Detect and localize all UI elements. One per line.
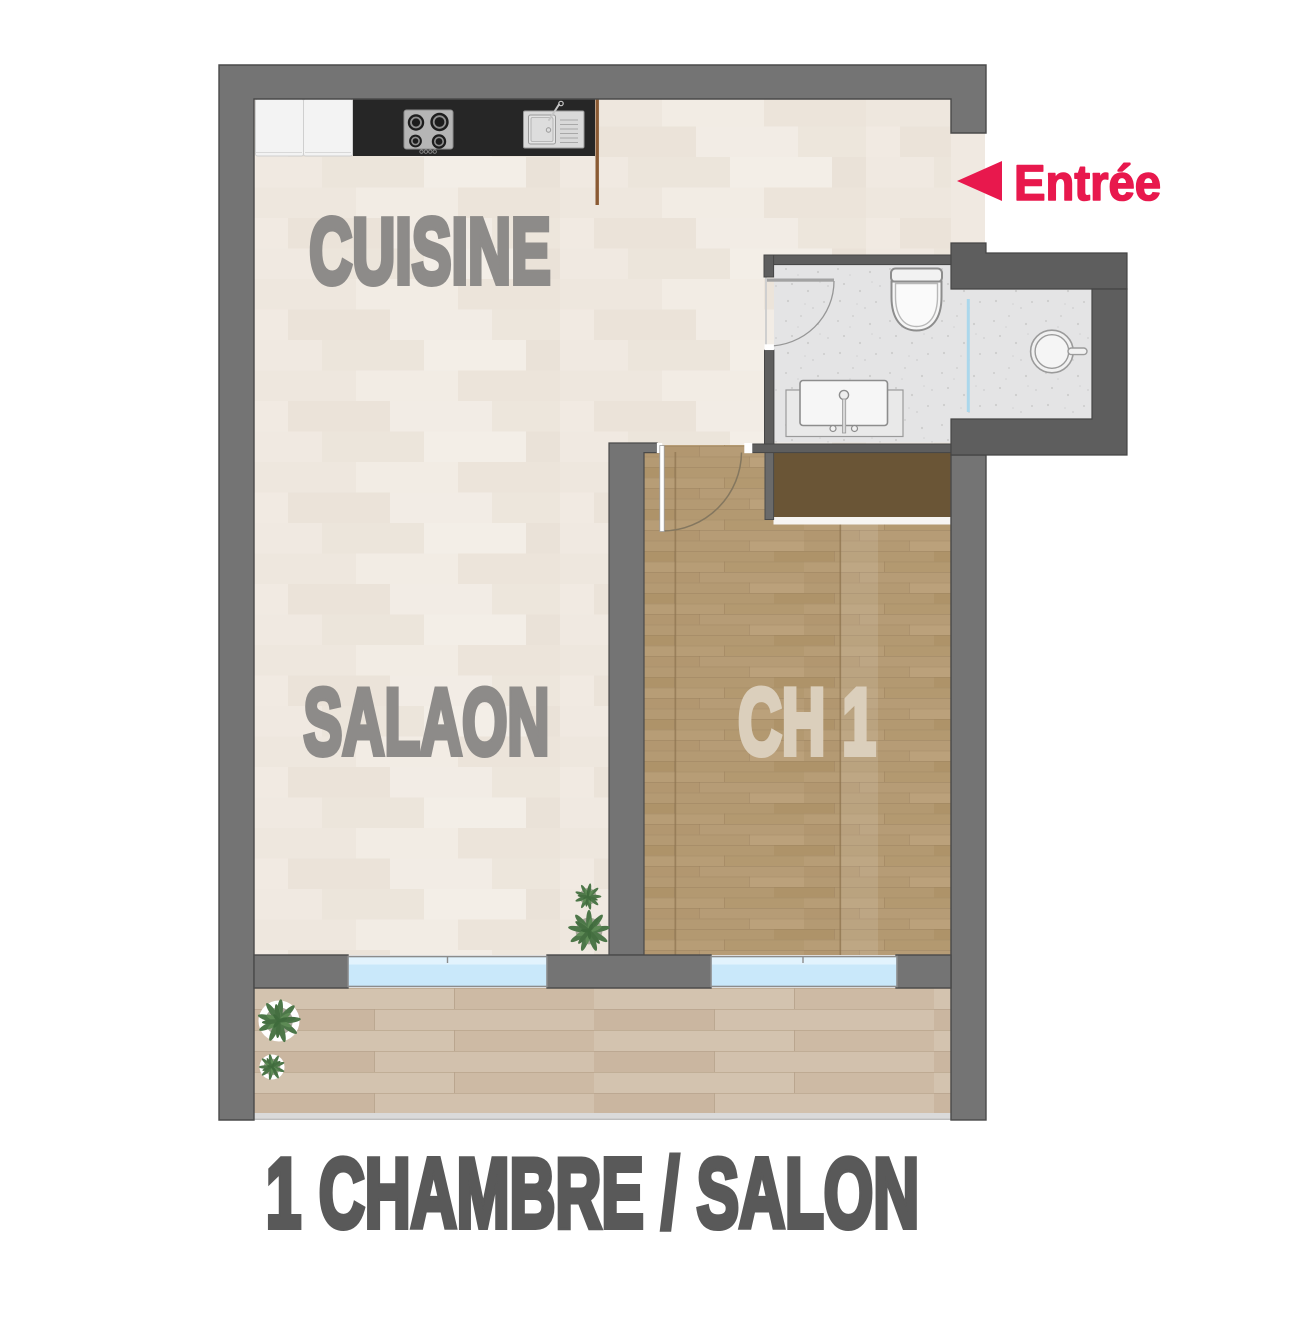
svg-text:SALAON: SALAON: [304, 669, 550, 775]
svg-text:CH 1: CH 1: [738, 668, 876, 774]
svg-text:Entrée: Entrée: [1014, 156, 1161, 212]
svg-text:CUISINE: CUISINE: [309, 201, 551, 303]
svg-text:1 CHAMBRE / SALON: 1 CHAMBRE / SALON: [266, 1138, 919, 1249]
